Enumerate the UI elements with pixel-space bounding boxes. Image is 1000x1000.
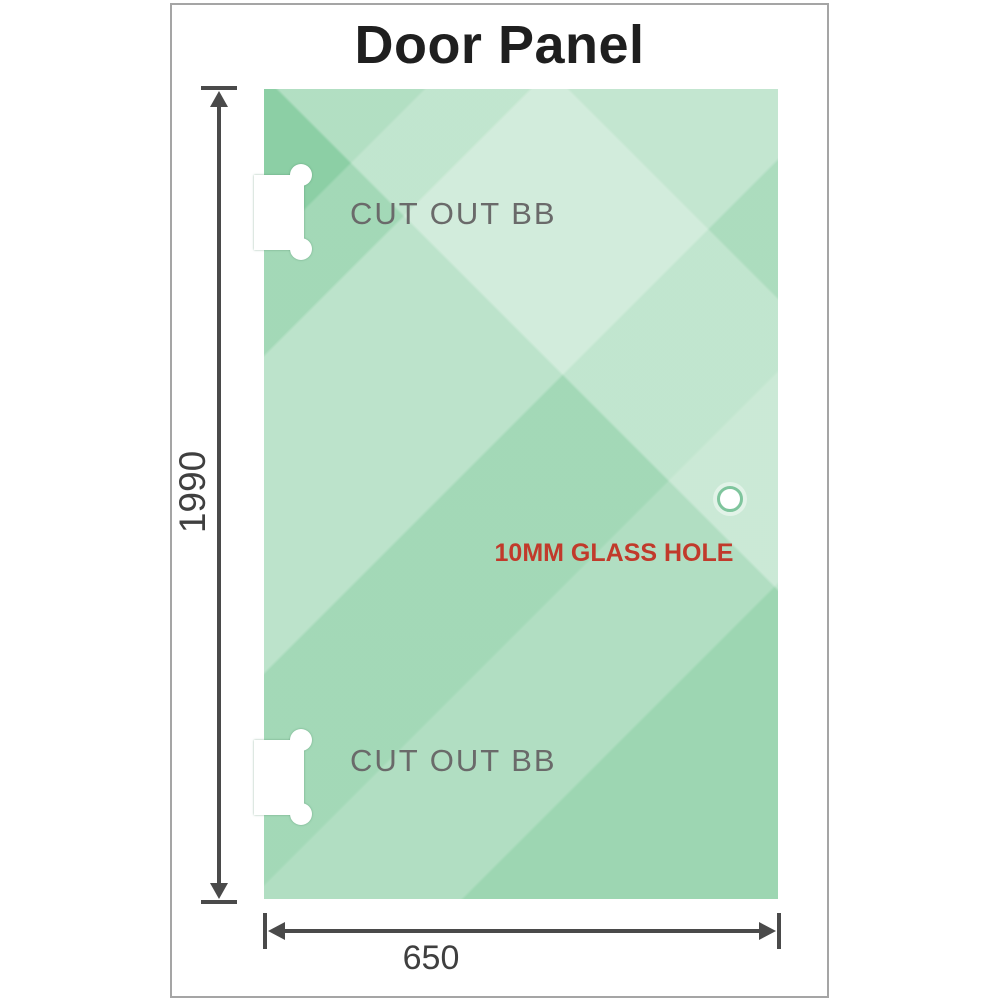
width-dimension-arrow-icon (260, 910, 790, 956)
glass-hole (717, 486, 743, 512)
hinge-cutout-top-icon (254, 158, 316, 264)
page-title: Door Panel (172, 15, 827, 75)
diagram-frame: Door Panel CUT OUT BB CUT OUT BB 10MM GL… (170, 3, 829, 998)
cutout-top-label: CUT OUT BB (350, 196, 610, 230)
width-dimension-label: 650 (371, 939, 491, 978)
diagram-canvas: Door Panel CUT OUT BB CUT OUT BB 10MM GL… (0, 0, 1000, 1000)
cutout-bottom-label: CUT OUT BB (350, 743, 610, 777)
glass-hole-label: 10MM GLASS HOLE (464, 539, 764, 568)
hinge-cutout-bottom-icon (254, 723, 316, 829)
height-dimension-label: 1990 (173, 432, 213, 552)
